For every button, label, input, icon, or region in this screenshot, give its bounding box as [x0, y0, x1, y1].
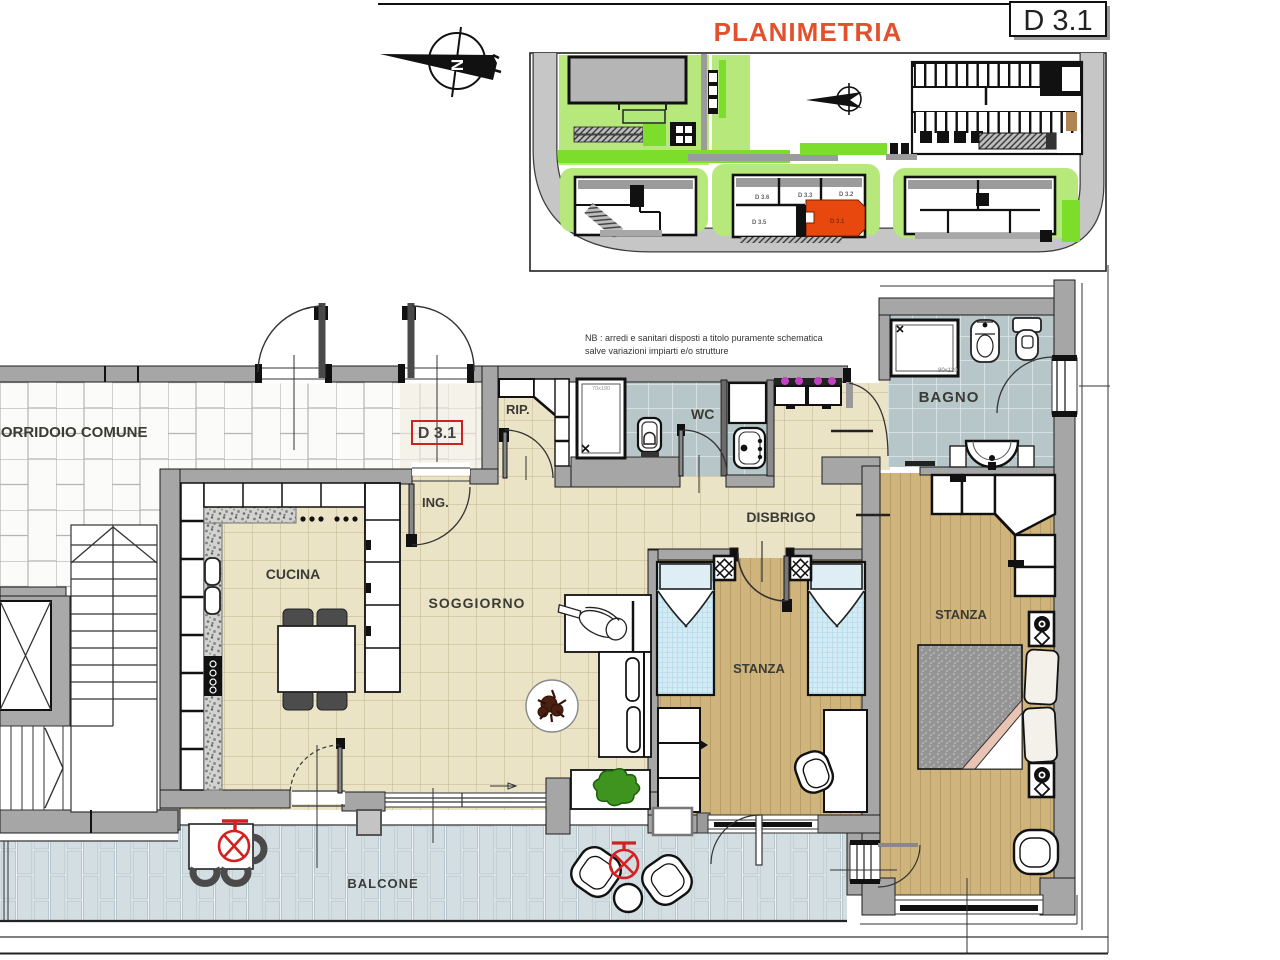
svg-text:D 3.1: D 3.1 [830, 219, 845, 225]
svg-text:SOGGIORNO: SOGGIORNO [429, 595, 526, 611]
svg-text:BAGNO: BAGNO [919, 389, 980, 406]
svg-text:D 3.2: D 3.2 [839, 192, 854, 198]
svg-text:STANZA: STANZA [935, 607, 987, 622]
svg-text:PLANIMETRIA: PLANIMETRIA [714, 17, 903, 47]
svg-text:N: N [448, 59, 467, 71]
svg-text:D 3.6: D 3.6 [755, 195, 770, 201]
svg-text:ING.: ING. [422, 495, 449, 510]
svg-text:DISBRIGO: DISBRIGO [746, 509, 815, 525]
svg-text:80x120: 80x120 [938, 368, 958, 374]
svg-text:salve variazioni impiarti e/o: salve variazioni impiarti e/o strutture [585, 346, 729, 356]
svg-text:D 3.5: D 3.5 [752, 220, 767, 226]
svg-text:CUCINA: CUCINA [266, 566, 320, 582]
svg-text:70x190: 70x190 [592, 386, 610, 392]
svg-text:NB : arredi e sanitari dispost: NB : arredi e sanitari disposti a titolo… [585, 333, 823, 343]
svg-text:D 3.3: D 3.3 [798, 193, 813, 199]
svg-text:CORRIDOIO COMUNE: CORRIDOIO COMUNE [0, 424, 148, 441]
svg-text:D 3.1: D 3.1 [418, 425, 456, 442]
svg-text:BALCONE: BALCONE [347, 876, 418, 891]
svg-text:WC: WC [691, 406, 714, 422]
svg-text:D 3.1: D 3.1 [1023, 5, 1092, 37]
svg-text:STANZA: STANZA [733, 661, 785, 676]
svg-text:RIP.: RIP. [506, 402, 530, 417]
